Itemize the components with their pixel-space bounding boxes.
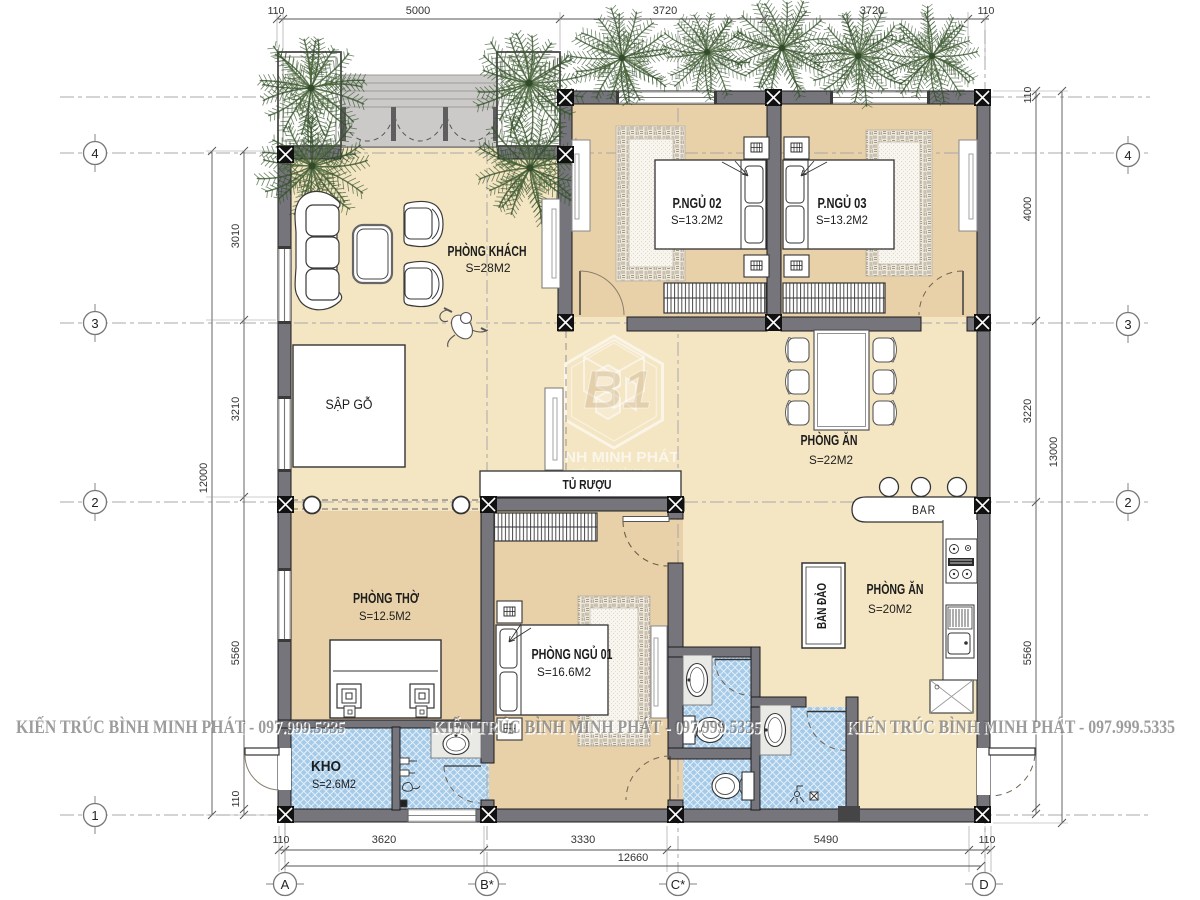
svg-text:KHO: KHO [311,758,341,775]
svg-text:110: 110 [1022,86,1034,103]
svg-text:B1: B1 [583,360,652,420]
svg-text:3620: 3620 [372,834,396,846]
svg-text:5560: 5560 [1022,641,1034,665]
svg-text:KIẾN TRÚC BÌNH MINH PHÁT - 097: KIẾN TRÚC BÌNH MINH PHÁT - 097.999.5335 [432,716,761,738]
svg-text:110: 110 [230,790,242,807]
svg-text:3010: 3010 [230,224,242,248]
svg-text:S=16.6M2: S=16.6M2 [537,665,591,679]
svg-text:S=20M2: S=20M2 [868,602,912,616]
svg-text:C*: C* [671,877,685,892]
svg-text:S=2.6M2: S=2.6M2 [312,777,356,791]
svg-text:PHÒNG KHÁCH: PHÒNG KHÁCH [448,242,527,260]
svg-text:TỦ RƯỢU: TỦ RƯỢU [563,477,612,492]
svg-text:KIẾN TRÚC BÌNH MINH PHÁT - 097: KIẾN TRÚC BÌNH MINH PHÁT - 097.999.5335 [16,716,345,738]
svg-text:BÌNH MINH PHÁT: BÌNH MINH PHÁT [549,449,679,466]
svg-text:3: 3 [1124,317,1131,332]
svg-text:110: 110 [268,5,285,17]
svg-text:PHÒNG ĂN: PHÒNG ĂN [801,431,858,449]
svg-text:B*: B* [480,877,494,892]
svg-text:110: 110 [273,834,290,846]
svg-text:5490: 5490 [814,834,838,846]
svg-text:4: 4 [91,146,98,161]
svg-text:110: 110 [978,5,995,17]
svg-text:S=22M2: S=22M2 [809,453,853,467]
svg-text:110: 110 [979,834,996,846]
svg-text:3: 3 [91,316,98,331]
svg-text:S=13.2M2: S=13.2M2 [671,213,723,227]
svg-text:3210: 3210 [230,397,242,421]
svg-text:PHÒNG ĂN: PHÒNG ĂN [867,580,924,598]
svg-text:12660: 12660 [618,852,649,864]
svg-text:SẬP GỖ: SẬP GỖ [326,397,373,412]
svg-text:1: 1 [91,808,98,823]
svg-text:3330: 3330 [571,834,595,846]
svg-text:3720: 3720 [860,5,884,17]
svg-text:P.NGỦ 02: P.NGỦ 02 [673,194,722,212]
svg-text:2: 2 [1124,495,1131,510]
svg-text:PHÒNG THỜ: PHÒNG THỜ [353,589,419,607]
svg-text:D: D [979,877,988,892]
svg-text:2: 2 [91,495,98,510]
svg-text:S=13.2M2: S=13.2M2 [816,213,868,227]
svg-text:13000: 13000 [1048,437,1060,468]
svg-text:PHÒNG NGỦ 01: PHÒNG NGỦ 01 [532,645,613,663]
svg-text:4000: 4000 [1022,197,1034,221]
svg-text:A: A [281,877,290,892]
svg-text:P.NGỦ 03: P.NGỦ 03 [818,194,867,212]
svg-text:3720: 3720 [653,5,677,17]
svg-text:KIẾN TRÚC BÌNH MINH PHÁT - 097: KIẾN TRÚC BÌNH MINH PHÁT - 097.999.5335 [846,716,1175,738]
svg-text:4: 4 [1124,148,1131,163]
svg-text:BAR: BAR [912,503,936,517]
svg-text:BÀN ĐẢO: BÀN ĐẢO [814,583,829,629]
svg-text:5560: 5560 [230,641,242,665]
svg-text:12000: 12000 [198,463,210,494]
svg-text:5000: 5000 [406,5,430,17]
svg-text:S=12.5M2: S=12.5M2 [359,609,411,623]
svg-text:S=28M2: S=28M2 [466,261,511,275]
svg-text:3220: 3220 [1022,399,1034,423]
